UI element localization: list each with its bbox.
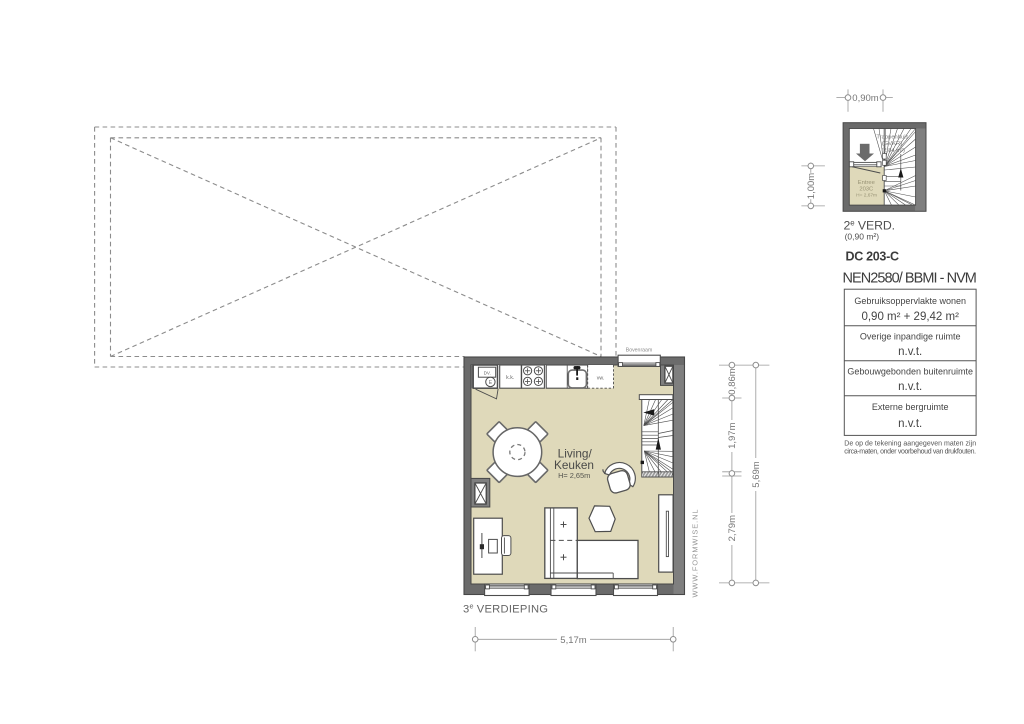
svg-text:5,17m: 5,17m: [560, 635, 586, 646]
svg-text:DV.: DV.: [484, 370, 491, 375]
svg-text:5,69m: 5,69m: [751, 461, 762, 487]
svg-text:Trappenhuis: Trappenhuis: [876, 134, 908, 140]
svg-text:(GVKR): (GVKR): [882, 141, 902, 147]
svg-text:0,90 m² + 29,42 m²: 0,90 m² + 29,42 m²: [861, 311, 959, 323]
svg-text:Externe bergruimte: Externe bergruimte: [872, 402, 949, 412]
svg-text:WWW.FORMWISE.NL: WWW.FORMWISE.NL: [690, 509, 699, 598]
svg-text:circa-maten, onder voorbehoud: circa-maten, onder voorbehoud van drukfo…: [844, 449, 976, 456]
svg-text:H= 2,67m: H= 2,67m: [856, 193, 877, 199]
svg-text:0,90m: 0,90m: [852, 93, 878, 104]
svg-text:203C: 203C: [859, 187, 873, 193]
svg-text:3eVERDIEPING: 3eVERDIEPING: [463, 602, 548, 616]
svg-text:n.v.t.: n.v.t.: [898, 346, 922, 358]
svg-text:(2,84 m²): (2,84 m²): [881, 148, 905, 154]
svg-text:Gebruiksoppervlakte wonen: Gebruiksoppervlakte wonen: [854, 296, 966, 306]
svg-text:n.v.t.: n.v.t.: [898, 381, 922, 393]
svg-text:2eVERD.: 2eVERD.: [844, 218, 895, 232]
svg-text:Overige inpandige ruimte: Overige inpandige ruimte: [860, 332, 961, 342]
svg-text:Gebouwgebonden buitenruimte: Gebouwgebonden buitenruimte: [847, 367, 973, 377]
svg-text:NEN2580/ BBMI - NVM: NEN2580/ BBMI - NVM: [843, 271, 976, 287]
svg-text:1,97m: 1,97m: [727, 422, 738, 448]
svg-text:De op de tekening aangegeven m: De op de tekening aangegeven maten zijn: [844, 441, 976, 448]
svg-text:vw.: vw.: [597, 375, 605, 381]
svg-text:2,79m: 2,79m: [727, 515, 738, 541]
svg-text:H= 2,65m: H= 2,65m: [558, 471, 590, 480]
svg-text:1,00m: 1,00m: [806, 173, 817, 199]
svg-text:Bovenraam: Bovenraam: [626, 348, 653, 354]
svg-text:(0,90 m²): (0,90 m²): [845, 232, 880, 242]
svg-text:DC 203-C: DC 203-C: [846, 250, 899, 264]
svg-text:n.v.t.: n.v.t.: [898, 418, 922, 430]
svg-text:0,86m: 0,86m: [727, 368, 738, 394]
svg-text:Keuken: Keuken: [554, 458, 594, 472]
svg-text:Entree: Entree: [858, 180, 875, 186]
svg-text:k.k.: k.k.: [506, 375, 514, 381]
